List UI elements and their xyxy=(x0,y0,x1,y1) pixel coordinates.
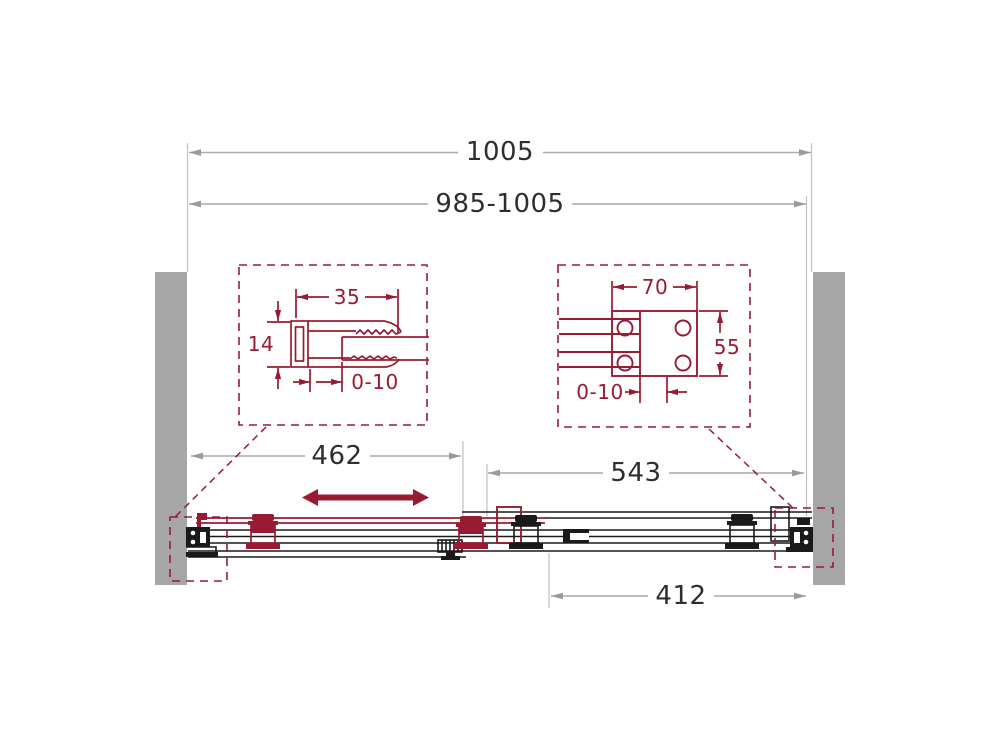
detail-left-dimensions: 35 14 0-10 xyxy=(248,285,399,394)
fixed-panel-span-label: 412 xyxy=(655,581,706,611)
callout-left-leader xyxy=(174,427,266,518)
callout-right-leader xyxy=(709,429,793,508)
plate-hole xyxy=(618,356,633,371)
plate-height-label: 55 xyxy=(714,335,740,359)
technical-drawing-canvas: 1005 985-1005 462 543 412 xyxy=(0,0,1000,750)
slide-direction-arrow xyxy=(302,489,429,506)
plate-adjustment-label: 0-10 xyxy=(576,380,623,404)
detail-left-wall-profile: 35 14 0-10 xyxy=(239,265,429,425)
profile-width-label: 35 xyxy=(334,285,360,309)
overall-width-label: 1005 xyxy=(466,137,534,167)
rail-assembly xyxy=(186,489,813,560)
plate-hole xyxy=(676,321,691,336)
rail-bars xyxy=(559,319,640,367)
rail-lines xyxy=(188,512,812,557)
drawing-svg: 1005 985-1005 462 543 412 xyxy=(0,0,1000,750)
sliding-door-roller-left xyxy=(246,514,280,549)
detail-right-dimensions: 70 55 0-10 xyxy=(576,275,740,404)
right-wall-bracket xyxy=(786,518,813,552)
right-span-label: 543 xyxy=(610,458,661,488)
sliding-panel-span-label: 462 xyxy=(311,441,362,471)
main-dimensions: 1005 985-1005 462 543 412 xyxy=(189,137,811,611)
wall-profile-drawing xyxy=(291,321,429,367)
fixed-panel-roller-center xyxy=(509,515,543,549)
fixed-panel-roller-right xyxy=(725,514,759,549)
adjustment-range-label: 985-1005 xyxy=(435,189,564,219)
right-wall xyxy=(813,272,845,585)
detail-right-mounting-plate: 70 55 0-10 xyxy=(558,265,750,427)
detail-callouts xyxy=(170,427,833,581)
rail-clip xyxy=(563,529,589,543)
profile-adjustment-label: 0-10 xyxy=(351,370,398,394)
dim-overall-width: 1005 xyxy=(189,137,811,167)
dim-sliding-panel-span: 462 xyxy=(191,441,461,471)
sliding-door-roller-center xyxy=(454,516,488,549)
profile-depth-label: 14 xyxy=(248,332,274,356)
plate-width-label: 70 xyxy=(642,275,668,299)
bracket-flag xyxy=(197,513,207,528)
walls xyxy=(155,272,845,585)
dim-fixed-panel-span: 412 xyxy=(551,581,806,611)
plate-hole xyxy=(676,356,691,371)
left-wall xyxy=(155,272,187,585)
dim-adjustment-range: 985-1005 xyxy=(189,189,806,219)
mounting-plate-drawing xyxy=(559,311,697,376)
